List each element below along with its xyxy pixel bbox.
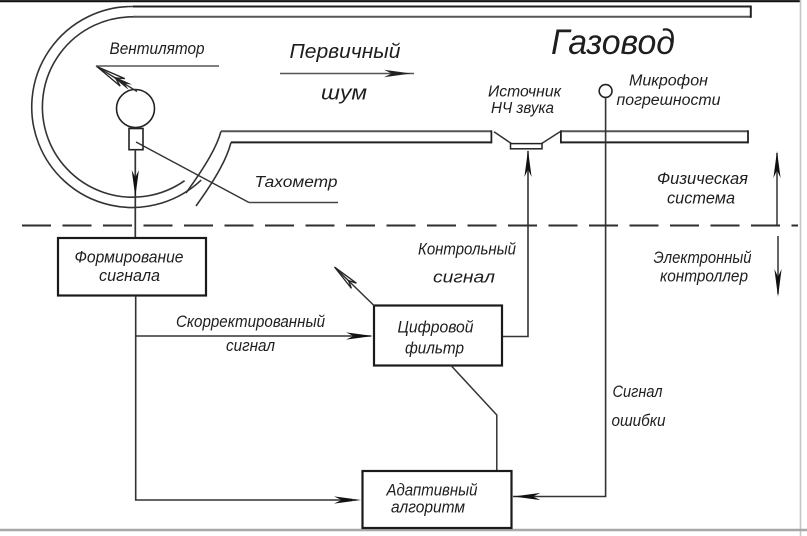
svg-text:Первичный: Первичный <box>290 41 401 63</box>
svg-text:Электронный: Электронный <box>654 249 752 267</box>
svg-text:контроллер: контроллер <box>660 268 748 286</box>
svg-text:Физическая: Физическая <box>657 170 748 188</box>
svg-text:Микрофон: Микрофон <box>629 73 708 90</box>
svg-text:Адаптивный: Адаптивный <box>386 482 478 500</box>
svg-text:шум: шум <box>321 83 367 105</box>
svg-text:алгоритм: алгоритм <box>391 499 465 517</box>
svg-text:НЧ звука: НЧ звука <box>491 100 554 117</box>
svg-text:сигнал: сигнал <box>433 269 495 287</box>
svg-text:Сигнал: Сигнал <box>613 383 663 401</box>
svg-text:Контрольный: Контрольный <box>418 241 516 259</box>
svg-text:Газовод: Газовод <box>551 23 675 62</box>
svg-text:ошибки: ошибки <box>612 412 666 430</box>
svg-text:Скорректированный: Скорректированный <box>176 313 325 331</box>
svg-text:Вентилятор: Вентилятор <box>110 39 205 58</box>
svg-text:Цифровой: Цифровой <box>398 318 474 337</box>
svg-text:Тахометр: Тахометр <box>255 174 338 191</box>
svg-text:сигнала: сигнала <box>99 267 160 285</box>
svg-text:система: система <box>667 190 735 208</box>
svg-text:погрешности: погрешности <box>617 92 721 109</box>
svg-text:сигнал: сигнал <box>226 337 275 355</box>
svg-text:Источник: Источник <box>488 84 562 101</box>
svg-text:фильтр: фильтр <box>405 339 464 358</box>
svg-text:Формирование: Формирование <box>75 249 184 267</box>
